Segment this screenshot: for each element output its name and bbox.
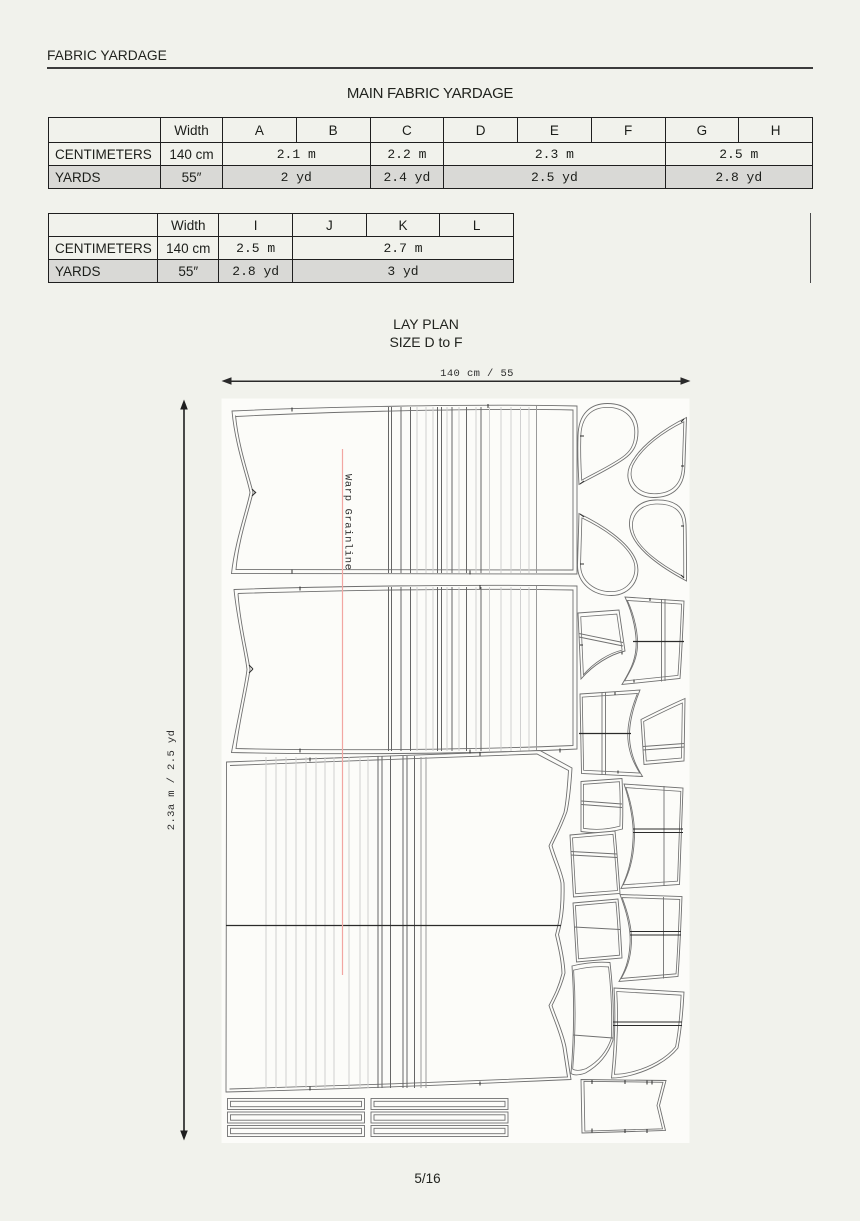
svg-text:Warp Grainline: Warp Grainline: [342, 474, 354, 571]
svg-text:140 cm / 55: 140 cm / 55: [440, 368, 514, 380]
svg-text:2.3a m / 2.5 yd: 2.3a m / 2.5 yd: [166, 730, 178, 831]
